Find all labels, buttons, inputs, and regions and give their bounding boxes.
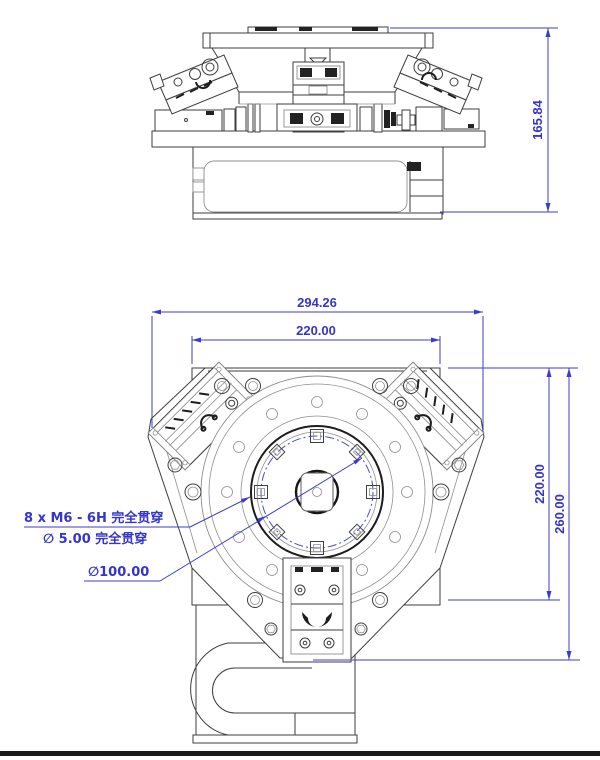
center-shaft-hole (296, 471, 338, 513)
note-bolt-circle-text: ∅100.00 (88, 565, 149, 580)
plan-view (148, 362, 484, 743)
side-left-wing (150, 55, 238, 114)
drawing-svg: 165.84 294.26 220.00 220.00 260.00 (0, 0, 600, 760)
dim-text-260-right: 260.00 (552, 494, 567, 534)
dim-text-220-top: 220.00 (296, 323, 336, 338)
plan-bottom-motor (283, 558, 351, 662)
note-thread-text: 8 x M6 - 6H 完全贯穿 (24, 510, 163, 526)
dim-text-165-84: 165.84 (530, 99, 545, 140)
side-right-wing (394, 55, 482, 114)
side-bottom-plate (193, 213, 442, 219)
bottom-border-bar (0, 751, 600, 756)
side-view (150, 27, 485, 219)
dim-220-top: 220.00 (192, 323, 440, 364)
note-hole-text: ∅ 5.00 完全贯穿 (43, 531, 147, 547)
dim-text-294-26: 294.26 (297, 295, 337, 310)
side-box-inner (204, 161, 407, 212)
side-base-plate (152, 131, 485, 147)
engineering-drawing-page: 165.84 294.26 220.00 220.00 260.00 (0, 0, 600, 760)
side-top-plate (203, 33, 433, 48)
dim-text-220-right: 220.00 (532, 464, 547, 504)
